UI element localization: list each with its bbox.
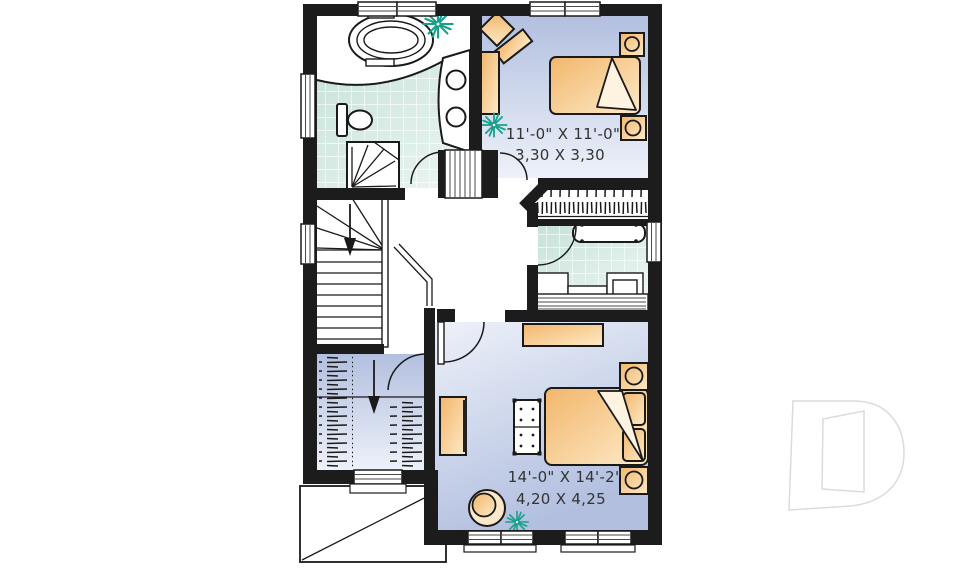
window-sill — [350, 484, 406, 493]
dresser-icon — [440, 397, 467, 455]
window-sill — [561, 545, 635, 552]
wall-segment — [533, 219, 648, 226]
window — [301, 74, 315, 138]
railing-icon — [382, 197, 388, 347]
counter-icon — [573, 223, 645, 243]
wall-segment — [303, 344, 384, 354]
hanging-clothes-icon — [319, 356, 353, 468]
room-dimension-metric: 3,30 X 3,30 — [515, 146, 605, 164]
window — [598, 531, 631, 544]
bathtub-icon — [529, 294, 648, 312]
floor-plan-page: 11'-0" X 11'-0" 3,30 X 3,30 — [0, 0, 960, 569]
wall-segment — [527, 203, 538, 227]
armchair-icon — [469, 490, 505, 526]
window — [530, 2, 565, 16]
window — [301, 224, 315, 264]
nightstand-lamp-icon — [620, 467, 648, 494]
window — [468, 531, 501, 544]
wall-segment — [424, 308, 435, 474]
hanging-clothes-closet-icon — [533, 190, 648, 214]
nightstand-lamp-icon — [620, 33, 644, 56]
nightstand-lamp-icon — [621, 116, 646, 140]
wall-segment — [303, 188, 405, 200]
plant-icon — [481, 113, 506, 136]
bench-icon — [513, 399, 542, 456]
double-sink-vanity-icon — [439, 50, 471, 152]
hanging-clothes-icon — [390, 400, 423, 468]
floor-plan-drawing: 11'-0" X 11'-0" 3,30 X 3,30 — [0, 0, 960, 569]
wall-segment — [538, 178, 648, 190]
window — [354, 470, 402, 484]
wall-segment — [505, 310, 662, 322]
room-dimension-imperial: 14'-0" X 14'-2" — [508, 468, 622, 486]
window — [501, 531, 533, 544]
window — [397, 2, 436, 16]
window — [565, 531, 598, 544]
room-dimension-metric: 4,20 X 4,25 — [516, 490, 606, 508]
wall-segment — [482, 150, 498, 198]
wall-segment — [470, 4, 482, 150]
dresser-icon — [523, 324, 603, 346]
room-dimension-imperial: 11'-0" X 11'-0" — [506, 125, 620, 143]
desk-icon — [481, 52, 499, 114]
wall-segment — [648, 4, 662, 545]
nightstand-lamp-icon — [620, 363, 648, 390]
wall-segment — [527, 265, 538, 312]
window — [647, 222, 661, 262]
watermark-logo — [789, 401, 904, 510]
plant-icon — [506, 512, 528, 533]
corner-shower-icon — [347, 142, 399, 190]
window — [565, 2, 600, 16]
staircase-down-icon — [317, 198, 385, 339]
wall-segment — [437, 309, 455, 322]
railing-angled — [394, 244, 432, 306]
window — [358, 2, 397, 16]
window-sill — [464, 545, 536, 552]
wall-segment — [438, 150, 445, 198]
bed-icon — [545, 388, 648, 465]
bed-icon — [550, 57, 640, 114]
wall-segment — [303, 4, 662, 16]
